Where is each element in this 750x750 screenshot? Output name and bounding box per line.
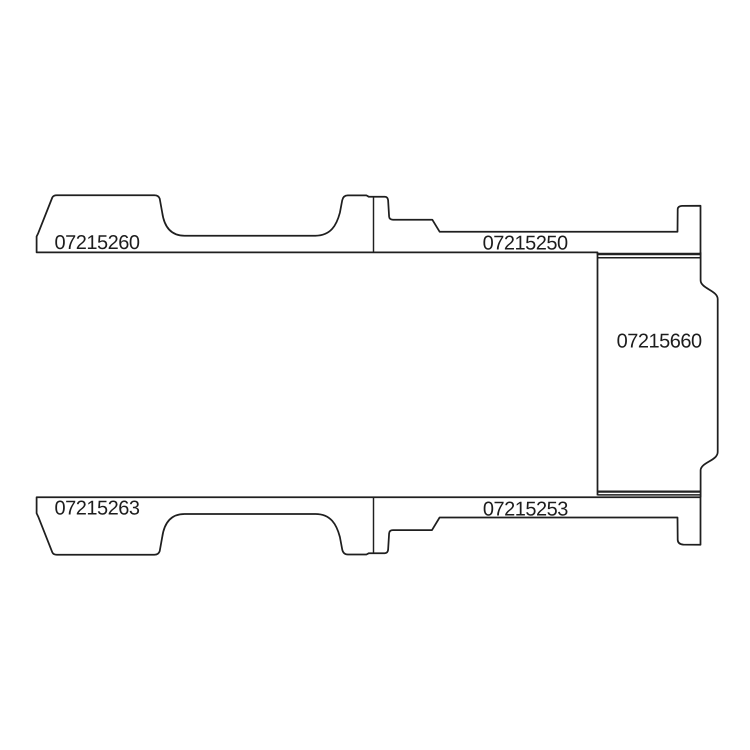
- svg-text:07215660: 07215660: [617, 331, 703, 353]
- svg-text:07215260: 07215260: [55, 232, 141, 254]
- svg-text:07215250: 07215250: [483, 233, 568, 255]
- svg-text:07215253: 07215253: [483, 498, 569, 520]
- svg-text:07215263: 07215263: [55, 498, 141, 520]
